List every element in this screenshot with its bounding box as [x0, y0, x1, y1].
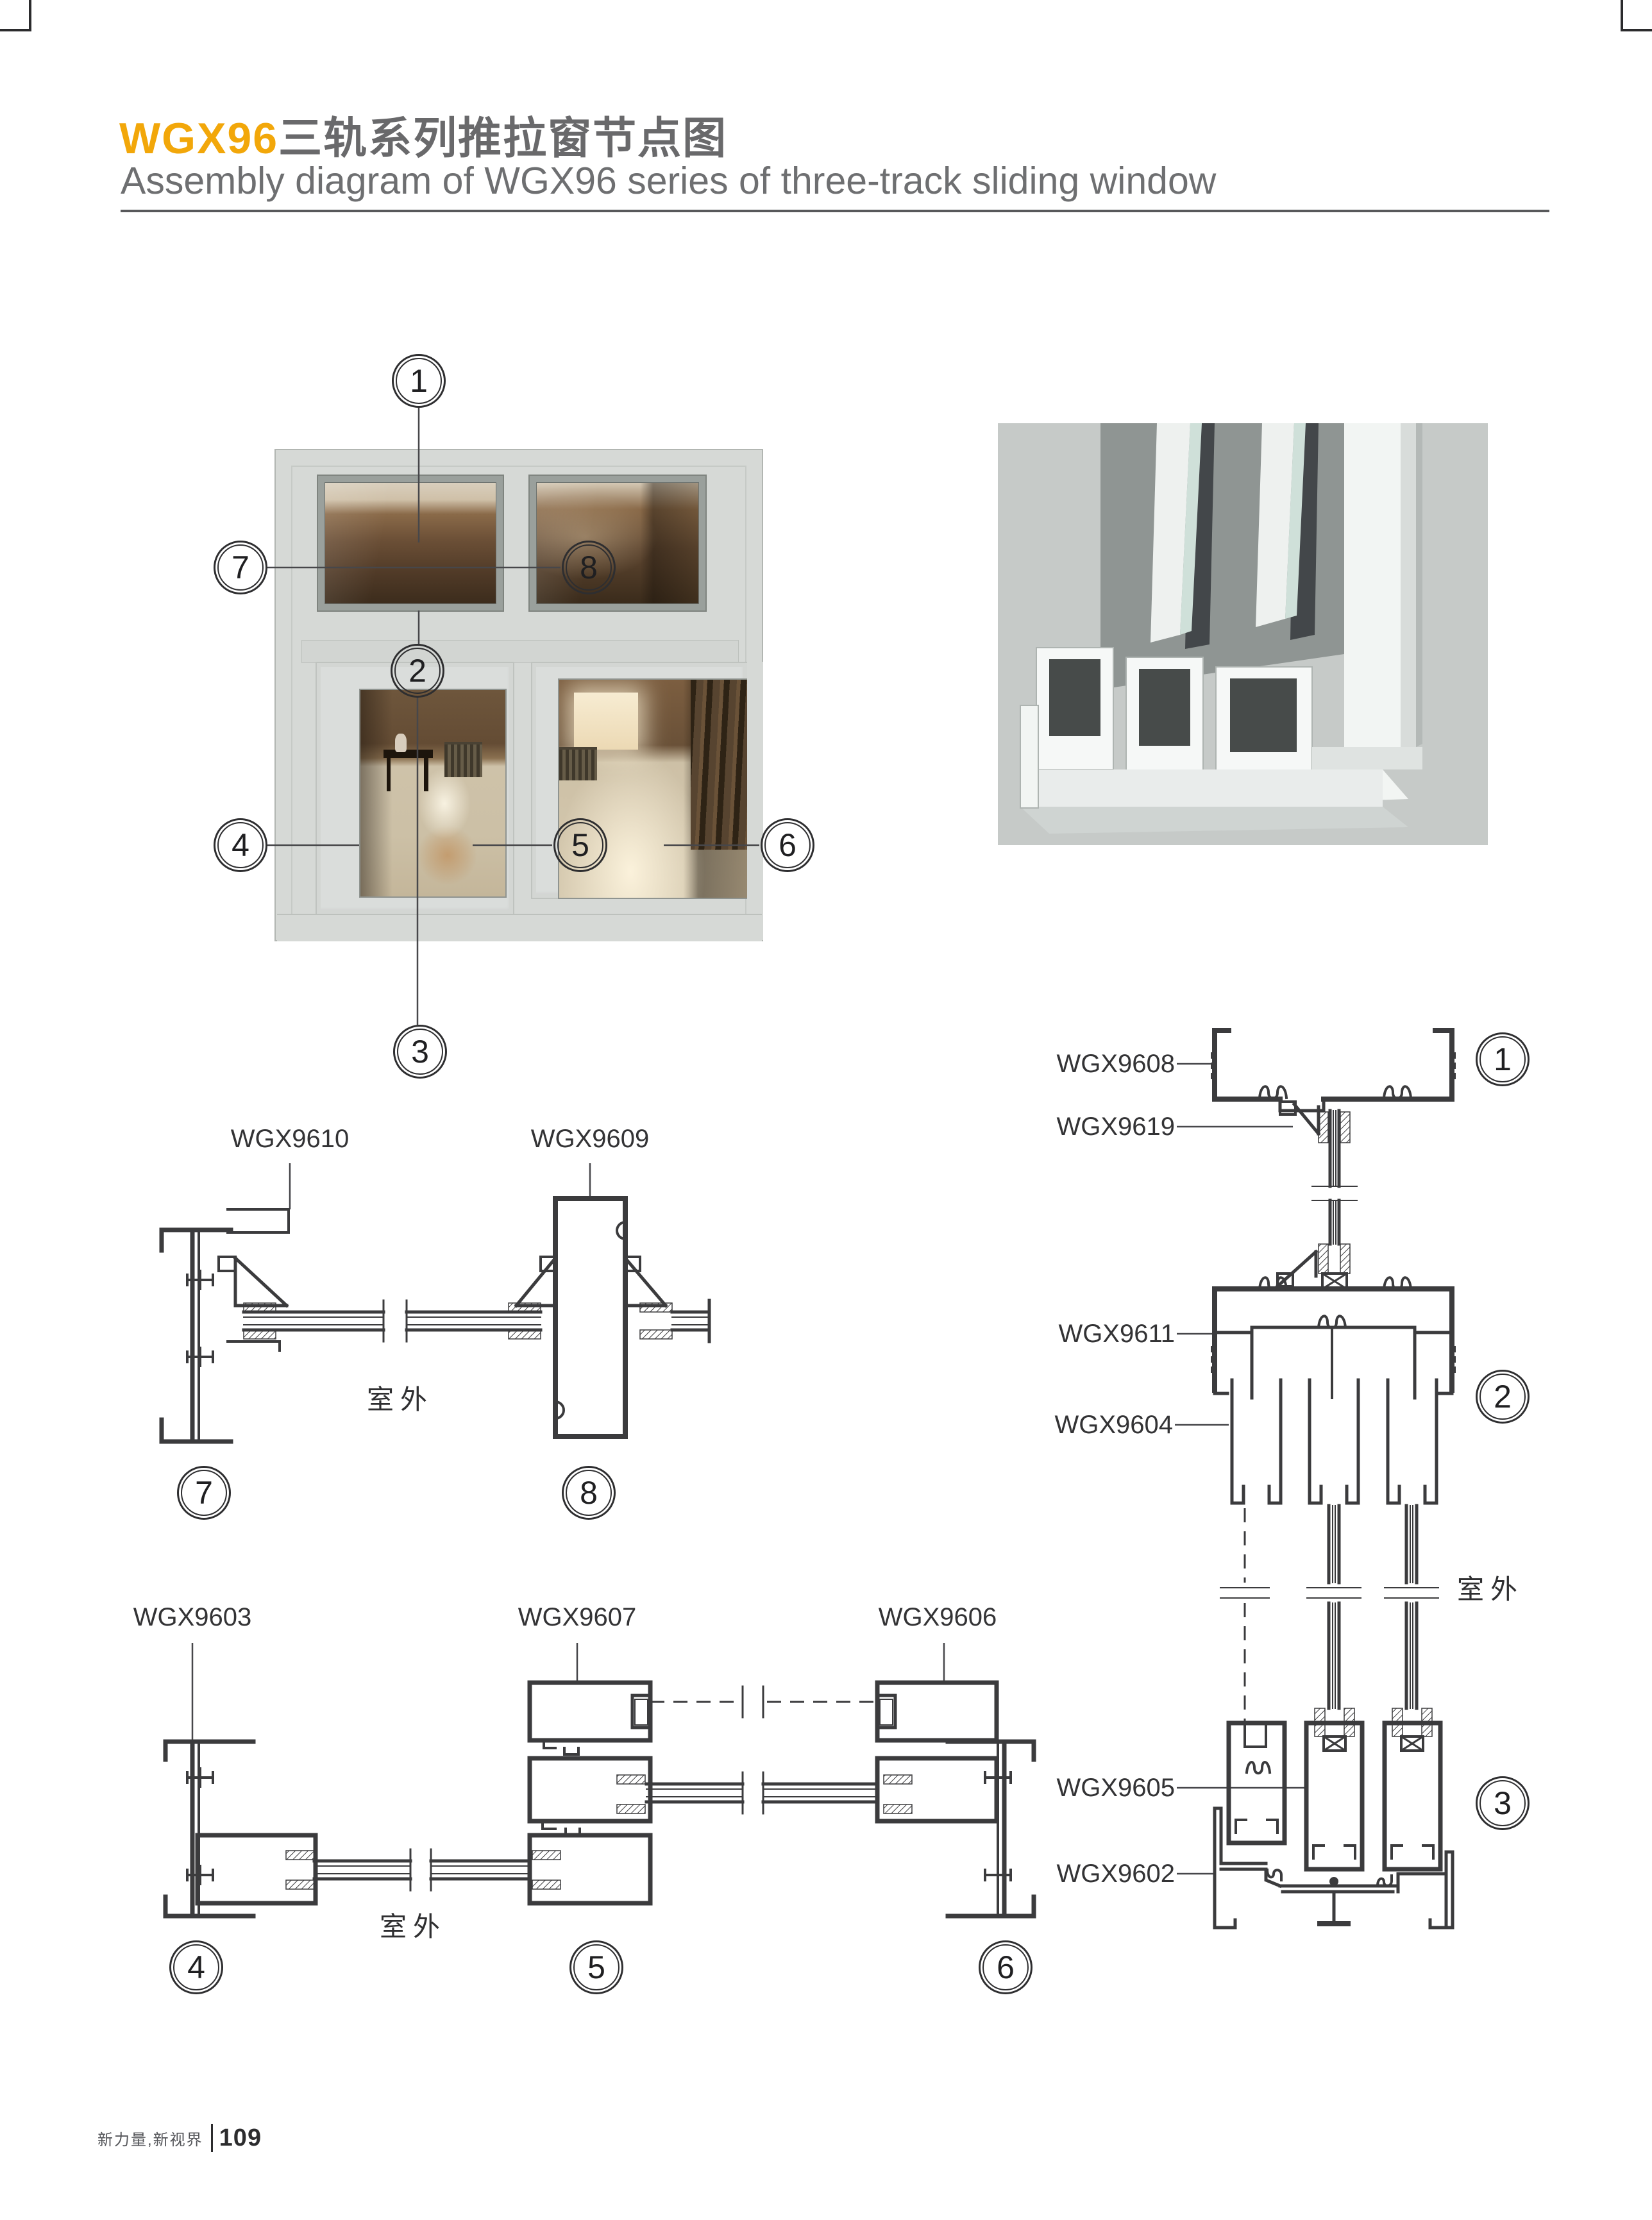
- crop-mark-top-right-icon: [1621, 0, 1623, 31]
- part-label-wgx9609: WGX9609: [531, 1123, 650, 1154]
- crop-mark-top-left-icon: [0, 29, 31, 31]
- part-label-wgx9602: WGX9602: [1056, 1858, 1175, 1889]
- outdoor-label-detail-456: 室外: [380, 1912, 446, 1942]
- callout-1-detail: 1: [1476, 1032, 1530, 1086]
- part-label-wgx9611: WGX9611: [1058, 1318, 1175, 1349]
- callout-8-photo: 8: [562, 541, 616, 594]
- crop-mark-top-right-icon: [1621, 29, 1652, 31]
- callout-2-photo: 2: [391, 644, 444, 698]
- callout-1-photo: 1: [392, 354, 446, 408]
- part-label-wgx9619: WGX9619: [1056, 1111, 1175, 1142]
- callout-7-photo: 7: [214, 541, 267, 594]
- page-title-brand: WGX96: [119, 114, 278, 163]
- part-label-wgx9610: WGX9610: [231, 1123, 350, 1154]
- outdoor-label-detail-123: 室外: [1457, 1575, 1524, 1604]
- callout-3-detail: 3: [1476, 1776, 1530, 1830]
- catalog-page: { "header": { "title_zh_brand": "WGX96",…: [0, 0, 1652, 2220]
- part-label-wgx9606: WGX9606: [879, 1602, 997, 1633]
- callout-6-photo: 6: [761, 818, 814, 872]
- callout-5-photo: 5: [553, 818, 607, 872]
- callout-3-photo: 3: [393, 1025, 447, 1079]
- callout-2-detail: 2: [1476, 1370, 1530, 1424]
- title-divider: [121, 210, 1549, 212]
- part-label-wgx9603: WGX9603: [133, 1602, 252, 1633]
- profile-3d-render: [998, 423, 1488, 845]
- page-title-en: Assembly diagram of WGX96 series of thre…: [121, 159, 1216, 203]
- crop-mark-top-left-icon: [29, 0, 31, 31]
- footer-divider: [211, 2124, 213, 2152]
- page-footer: 新力量,新视界 109: [97, 2124, 262, 2152]
- page-title-zh-rest: 三轨系列推拉窗节点图: [278, 114, 727, 163]
- outdoor-label-detail-78: 室外: [367, 1385, 434, 1415]
- photo-callout-lines: [180, 346, 859, 1090]
- footer-slogan: 新力量,新视界: [97, 2127, 203, 2149]
- callout-4-photo: 4: [214, 818, 267, 872]
- part-label-wgx9607: WGX9607: [518, 1602, 637, 1633]
- callout-8-detail: 8: [562, 1466, 616, 1520]
- callout-4-detail: 4: [169, 1940, 223, 1994]
- part-label-wgx9608: WGX9608: [1056, 1048, 1175, 1079]
- part-label-wgx9604: WGX9604: [1054, 1409, 1173, 1440]
- footer-page-number: 109: [219, 2124, 262, 2152]
- part-label-wgx9605: WGX9605: [1056, 1772, 1175, 1803]
- page-title-zh: WGX96三轨系列推拉窗节点图: [119, 103, 727, 166]
- callout-6-detail: 6: [979, 1940, 1032, 1994]
- callout-7-detail: 7: [177, 1466, 231, 1520]
- callout-5-detail: 5: [569, 1940, 623, 1994]
